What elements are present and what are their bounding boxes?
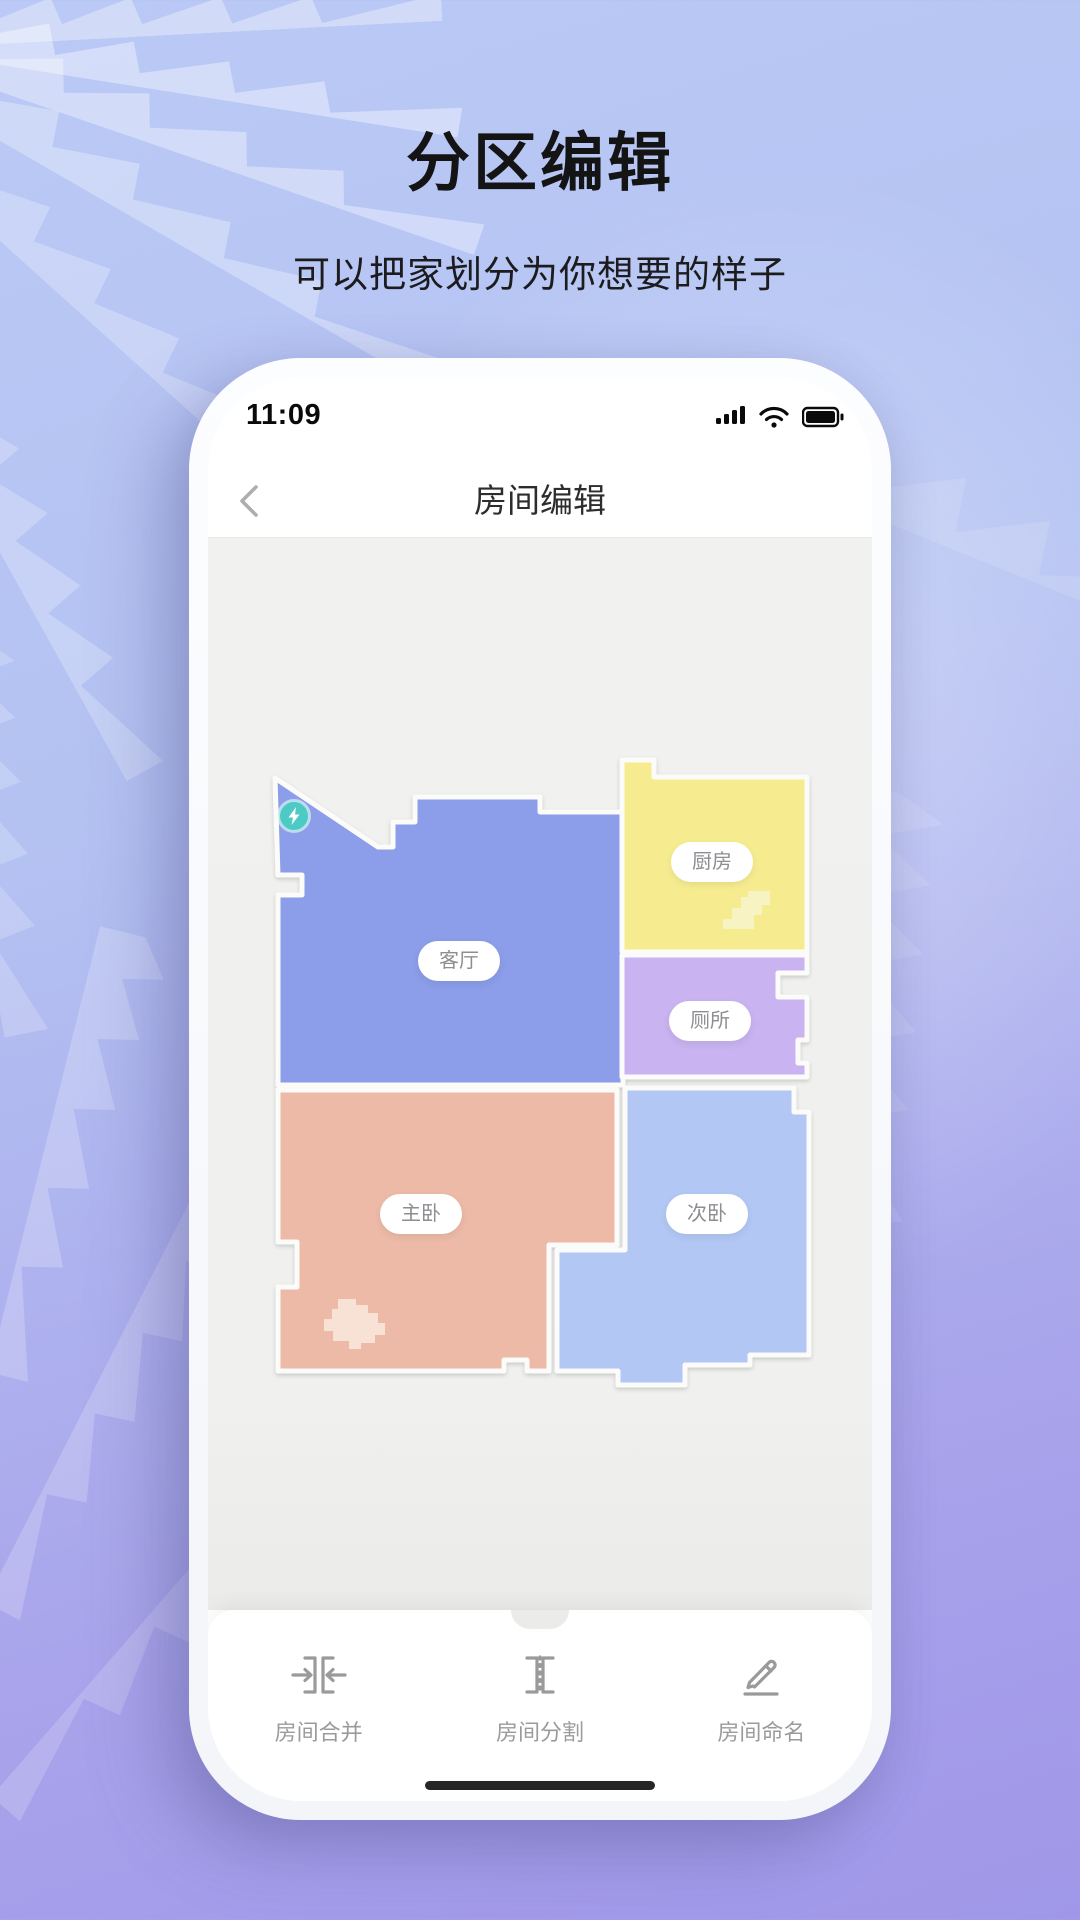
split-rooms-button[interactable]: 房间分割 xyxy=(496,1650,584,1747)
status-bar: 11:09 xyxy=(208,377,872,473)
signal-icon xyxy=(716,405,746,434)
wifi-icon xyxy=(758,405,790,434)
rename-room-label: 房间命名 xyxy=(717,1715,805,1747)
background-ray xyxy=(0,0,442,47)
split-rooms-icon xyxy=(510,1650,570,1705)
battery-icon xyxy=(802,405,844,434)
status-time: 11:09 xyxy=(246,399,321,432)
bottom-sheet: 房间合并 房间分割 xyxy=(208,1610,872,1801)
split-rooms-label: 房间分割 xyxy=(496,1715,584,1747)
room-label-master-bedroom[interactable]: 主卧 xyxy=(380,1194,462,1234)
room-living-room[interactable] xyxy=(275,778,623,1085)
page-title: 分区编辑 xyxy=(0,112,1080,204)
page-subtitle: 可以把家划分为你想要的样子 xyxy=(0,244,1080,298)
map-area: 客厅 厨房 厕所 主卧 次卧 xyxy=(208,538,872,1610)
room-label-living-room[interactable]: 客厅 xyxy=(418,941,500,981)
charge-station-icon xyxy=(279,801,310,832)
toolbar: 房间合并 房间分割 xyxy=(208,1610,872,1747)
nav-title: 房间编辑 xyxy=(208,473,872,529)
phone-mockup: 11:09 xyxy=(189,358,891,1820)
phone-screen: 11:09 xyxy=(208,377,872,1801)
home-indicator[interactable] xyxy=(425,1781,655,1790)
merge-rooms-icon xyxy=(289,1650,349,1705)
nav-bar: 房间编辑 xyxy=(208,473,872,537)
merge-rooms-label: 房间合并 xyxy=(275,1715,363,1747)
room-label-kitchen[interactable]: 厨房 xyxy=(671,842,753,882)
rename-room-button[interactable]: 房间命名 xyxy=(717,1650,805,1747)
room-label-second-bedroom[interactable]: 次卧 xyxy=(666,1194,748,1234)
rename-room-icon xyxy=(731,1650,791,1705)
room-label-toilet[interactable]: 厕所 xyxy=(669,1001,751,1041)
merge-rooms-button[interactable]: 房间合并 xyxy=(275,1650,363,1747)
